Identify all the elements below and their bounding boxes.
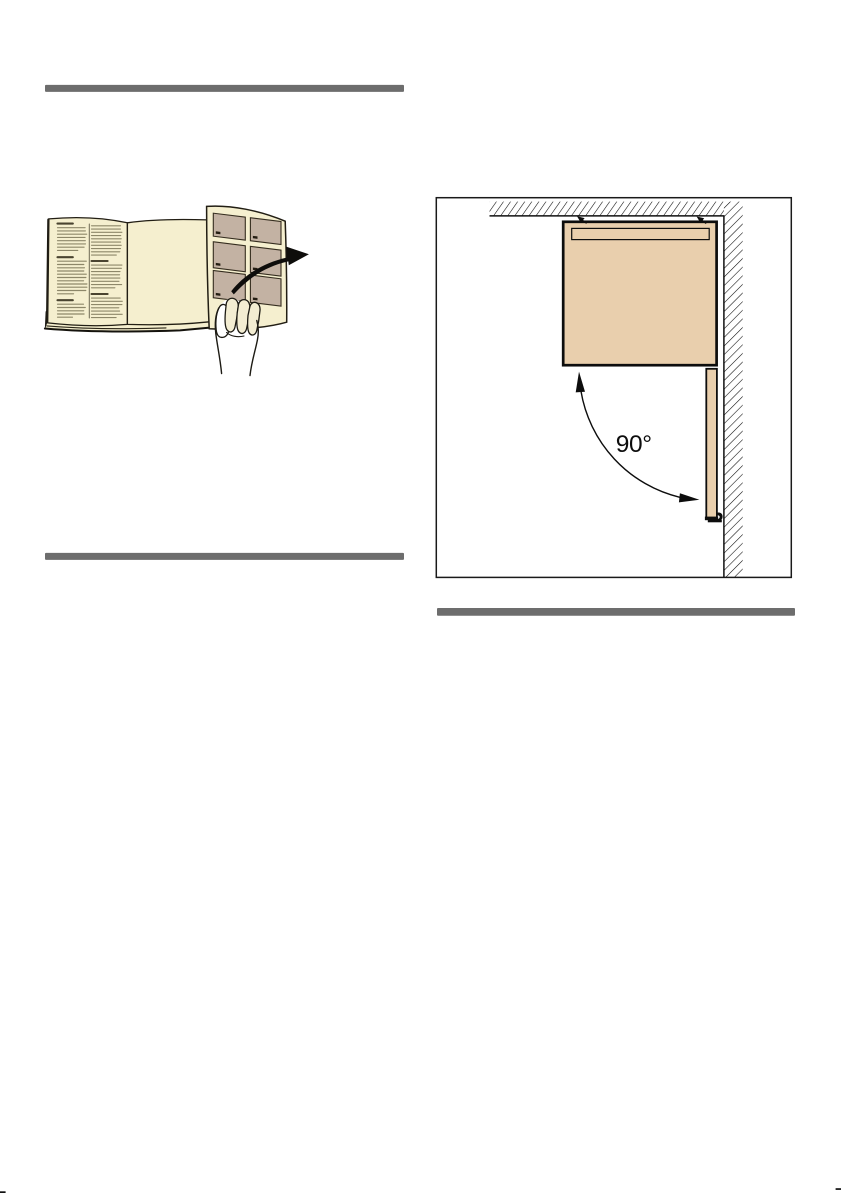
- svg-text:90°: 90°: [616, 431, 652, 458]
